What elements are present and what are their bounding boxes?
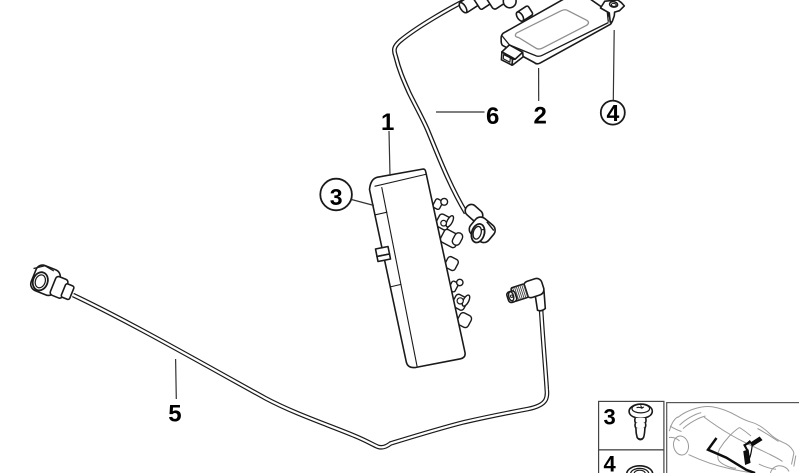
svg-text:4: 4: [604, 452, 617, 473]
svg-text:5: 5: [168, 401, 181, 428]
svg-text:2: 2: [534, 103, 547, 130]
svg-text:4: 4: [607, 100, 620, 126]
svg-text:1: 1: [381, 109, 394, 136]
svg-text:6: 6: [486, 103, 499, 130]
svg-text:3: 3: [604, 405, 616, 430]
svg-text:3: 3: [330, 184, 343, 210]
